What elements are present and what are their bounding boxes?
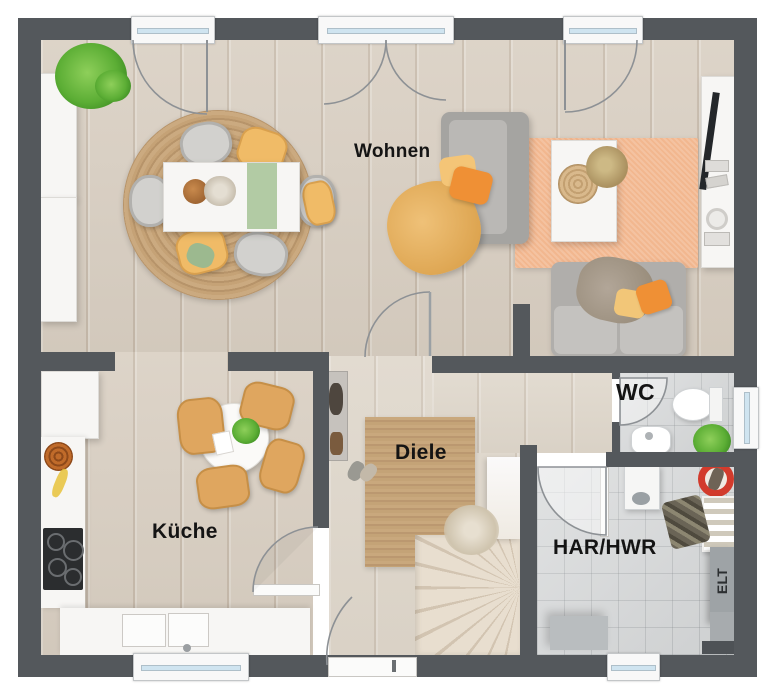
pampas-grass <box>444 505 499 555</box>
wall-interior <box>520 445 537 657</box>
room-label-wohnen: Wohnen <box>354 141 430 163</box>
wall-interior <box>606 452 735 467</box>
window-glazing <box>611 665 656 671</box>
room-label-elt: ELT <box>714 565 730 597</box>
washing-machine-door <box>632 492 650 505</box>
dried-plant <box>586 146 628 188</box>
bag <box>330 432 343 455</box>
wall-interior <box>612 422 620 453</box>
window-glazing <box>141 665 241 671</box>
toilet-bowl <box>672 388 714 421</box>
wc-faucet <box>645 432 653 440</box>
wall-interior <box>513 304 530 356</box>
table-plant <box>232 418 260 444</box>
bouquet <box>204 176 236 206</box>
window <box>133 653 249 681</box>
sink-basin <box>168 613 209 647</box>
sideboard <box>40 197 77 322</box>
sink-basin <box>122 614 166 647</box>
room-label-diele: Diele <box>395 441 447 465</box>
room-label-kueche: Küche <box>152 520 218 544</box>
entrance-door <box>328 657 417 677</box>
wall-exterior-left <box>18 40 41 655</box>
books <box>704 232 730 246</box>
books <box>705 160 729 172</box>
entrance-door-handle <box>392 660 396 672</box>
corner-plant-frond <box>95 70 131 102</box>
storage-crate <box>710 612 734 642</box>
storage-box <box>550 616 608 650</box>
wall-interior <box>41 352 115 371</box>
coats <box>329 383 343 415</box>
floor-mat <box>702 641 734 654</box>
window-glazing <box>569 28 638 34</box>
room-label-wc: WC <box>616 379 655 406</box>
wall-exterior-right <box>734 40 757 655</box>
wc-sink <box>631 426 671 455</box>
window <box>733 387 759 449</box>
wall-interior <box>432 356 735 373</box>
wall-interior <box>313 352 329 528</box>
window <box>607 653 660 681</box>
room-label-har: HAR/HWR <box>553 536 657 560</box>
burner <box>64 568 82 586</box>
utility-door-leaf <box>600 467 609 537</box>
faucet <box>183 644 191 652</box>
window-glazing <box>137 28 209 34</box>
decor-roll <box>706 208 728 230</box>
window-glazing <box>744 392 750 445</box>
window-glazing <box>327 28 445 34</box>
window <box>563 16 643 44</box>
fruit-bowl <box>44 442 73 471</box>
window <box>131 16 215 44</box>
window <box>318 16 454 44</box>
fridge <box>41 371 99 439</box>
floor-plan: Wohnen Küche Diele WC HAR/HWR ELT <box>0 0 775 698</box>
kitchen-door-leaf <box>253 584 320 596</box>
burner <box>63 540 84 561</box>
toilet-cistern <box>709 387 723 422</box>
table-runner <box>247 163 277 229</box>
